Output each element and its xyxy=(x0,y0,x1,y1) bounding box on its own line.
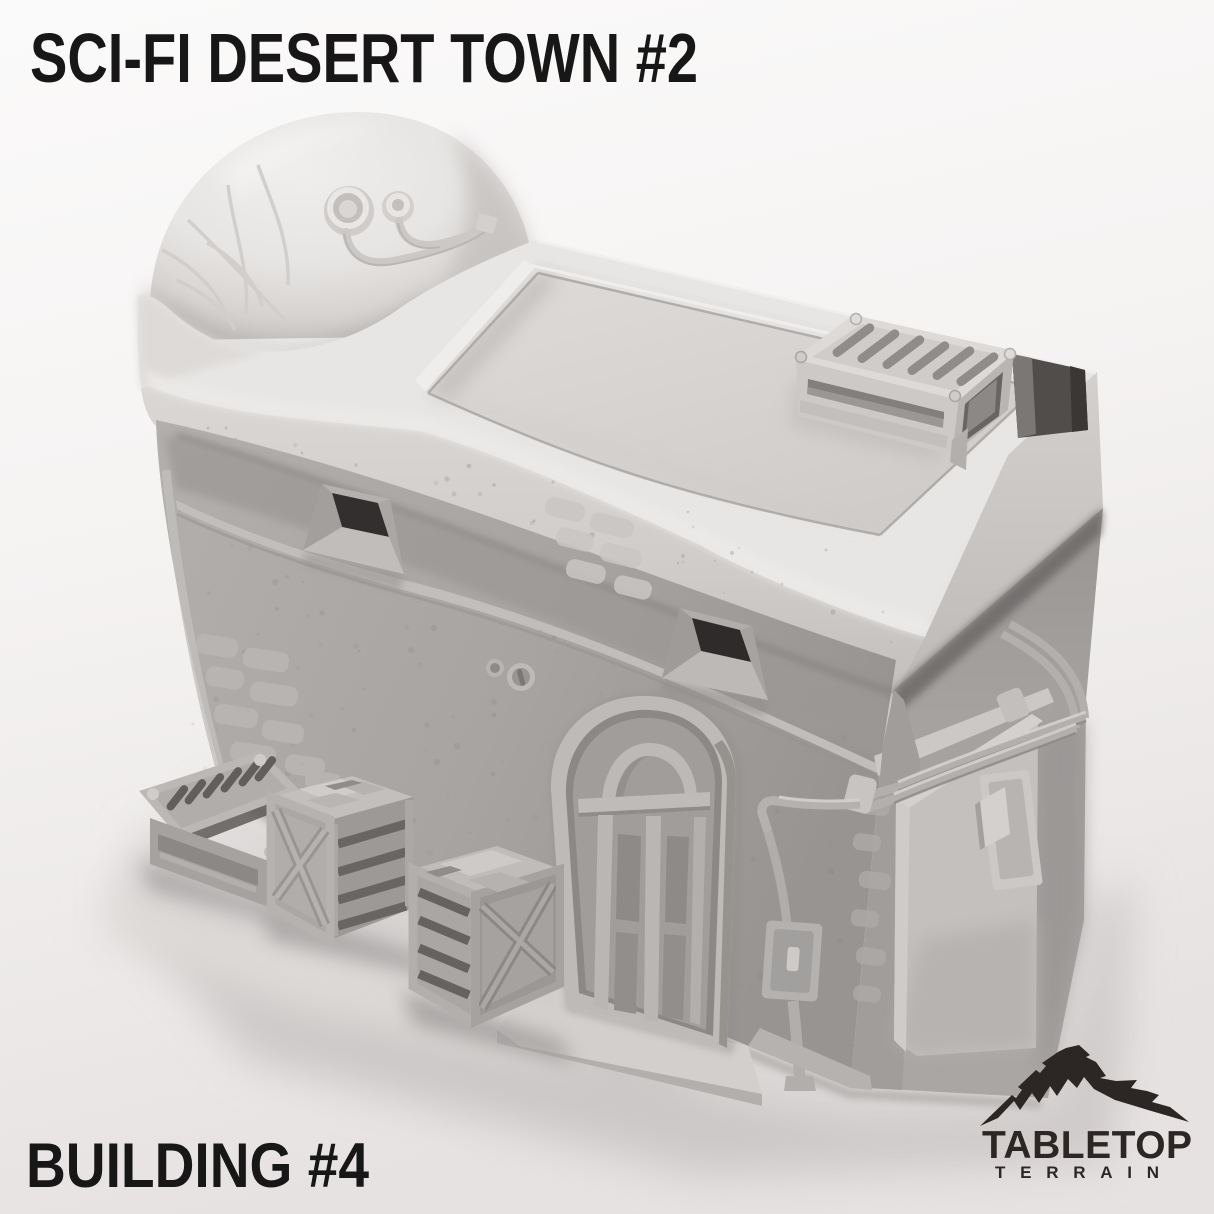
svg-text:TABLETOP: TABLETOP xyxy=(982,1124,1193,1167)
svg-text:BUILDING #4: BUILDING #4 xyxy=(26,1131,369,1201)
svg-text:SCI-FI DESERT TOWN #2: SCI-FI DESERT TOWN #2 xyxy=(30,19,698,97)
